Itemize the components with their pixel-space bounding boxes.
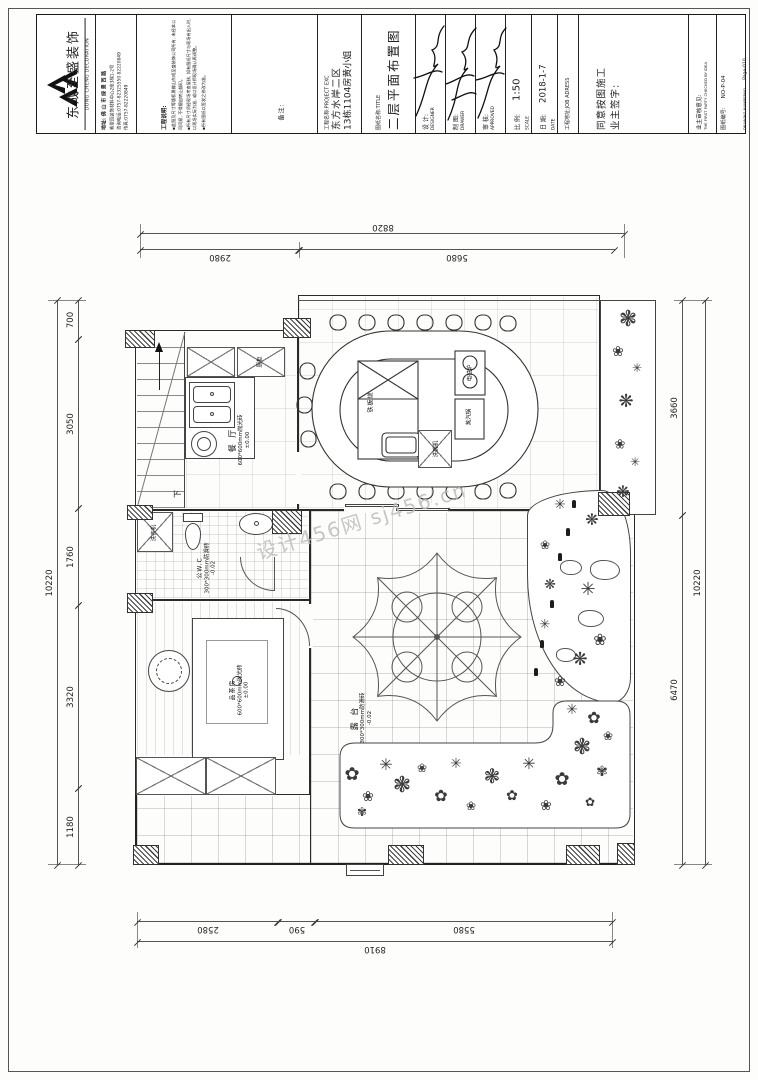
dining-table-set bbox=[300, 315, 545, 500]
drawing-sheet: 东成至盛装饰 DONG CHENG DECORATION 地址: 佛 山 市 绿… bbox=[0, 0, 758, 1080]
flower-icon: ✳ bbox=[522, 756, 535, 772]
drawing-number-cell: 图纸编号: NO-P-04 DRAWING NUMBERNO Page-010 bbox=[717, 15, 745, 133]
dim-top-seg: 5680 bbox=[299, 249, 615, 250]
flower-icon: ❀ bbox=[554, 675, 566, 689]
company-tel: 咨询电话:0757-82325550 82220849 bbox=[116, 18, 123, 130]
toilet-tank bbox=[183, 513, 203, 522]
dim-bottom-overall: 8910 bbox=[137, 941, 613, 942]
title-block: 东成至盛装饰 DONG CHENG DECORATION 地址: 佛 山 市 绿… bbox=[36, 14, 746, 134]
flower-icon: ❀ bbox=[615, 439, 626, 452]
flower-icon: ✿ bbox=[344, 766, 359, 784]
owner-check-label-en: THE FIRST PARTY CHECKED BY IDEA bbox=[704, 18, 709, 130]
notes-heading: 工程说明: bbox=[161, 18, 169, 130]
company-cell: 东成至盛装饰 DONG CHENG DECORATION bbox=[37, 15, 96, 133]
signatures bbox=[414, 20, 514, 128]
approver-signature bbox=[476, 28, 506, 118]
dishwasher-label: 洗碗机 bbox=[434, 441, 441, 458]
dim-right-seg: 6470 bbox=[682, 515, 683, 865]
tea-cabinet-box bbox=[206, 757, 276, 795]
stone bbox=[578, 610, 604, 627]
extension-line bbox=[140, 224, 141, 258]
flower-icon: ❋ bbox=[616, 484, 629, 500]
cabinet-label: 厨柜 bbox=[258, 356, 265, 367]
drawing-title-cell: 图纸名称:TITLE 二层平面布置图 bbox=[362, 15, 416, 133]
exterior-step-line bbox=[350, 870, 380, 871]
flower-icon: ❋ bbox=[572, 651, 587, 669]
wall-column bbox=[127, 593, 153, 613]
company-address-1: 地址: 佛 山 市 绿 景 西 路 bbox=[100, 18, 109, 130]
plant-marker bbox=[540, 640, 544, 648]
drawing-page: Page-010 bbox=[743, 58, 748, 80]
owner-sign-label: 业主签字: bbox=[611, 18, 623, 130]
flower-icon: ✾ bbox=[596, 765, 608, 779]
tea-cabinet-box bbox=[136, 757, 206, 795]
owner-sign-cell: 同意按图施工 业主签字: bbox=[579, 15, 689, 133]
washer-label: 洗衣机 bbox=[152, 525, 159, 542]
plant-marker bbox=[534, 668, 538, 676]
dim-top-overall: 8820 bbox=[140, 233, 625, 234]
wall-column bbox=[617, 843, 635, 865]
wall-column bbox=[133, 845, 159, 865]
flower-icon: ✿ bbox=[585, 796, 595, 808]
drawing-number-value: NO-P-04 bbox=[721, 75, 727, 98]
induction-label: 电磁炉 bbox=[468, 365, 475, 382]
notes-item: ▪所有尺寸须经现场考查复核, 如有图纸尺寸与现场有出入时, 以现场实际为准, 或… bbox=[186, 18, 199, 130]
terrace-floor bbox=[137, 796, 311, 863]
designer-signature bbox=[414, 26, 444, 116]
stairs-arrow-stem bbox=[159, 350, 160, 390]
flower-icon: ❀ bbox=[593, 632, 606, 648]
remark-label: 备注: bbox=[278, 103, 286, 120]
drawing-title: 二层平面布置图 bbox=[385, 18, 401, 130]
teppanyaki-label: 铁板烧 bbox=[367, 391, 375, 412]
flower-icon: ✳ bbox=[554, 498, 566, 512]
wc-label: 公W.C 300*300mm防滑砖 -0.02 bbox=[196, 543, 217, 594]
tree-icon: ❃ bbox=[573, 737, 591, 759]
flower-icon: ✳ bbox=[450, 757, 462, 771]
drawing-number-label: 图纸编号: bbox=[721, 108, 727, 131]
drawing-title-label: 图纸名称:TITLE bbox=[376, 18, 383, 130]
notes-cell: 工程说明: ▪此图及尺寸等版权属佛山东成至盛装饰公司所有, 未经本公司同意, 不… bbox=[137, 15, 233, 133]
date-label: 日 期: bbox=[541, 114, 549, 130]
burner-inner bbox=[197, 437, 211, 451]
flower-icon: ✳ bbox=[580, 581, 595, 599]
dim-top-seg: 2980 bbox=[140, 249, 299, 250]
tree-icon: ❃ bbox=[619, 309, 637, 331]
wall-column bbox=[388, 845, 424, 865]
dim-left-seg: 1760 bbox=[78, 508, 79, 605]
parasol-set bbox=[352, 549, 522, 725]
company-address-2: 紫翠园装饰材料中心2座3梯1-2号 bbox=[109, 18, 116, 130]
stairs-diagonal bbox=[137, 332, 185, 508]
company-fax: 传真:0757-82220849 bbox=[124, 18, 131, 130]
plant-marker bbox=[550, 600, 554, 608]
job-address-label: 工程地址:JOB ADRESS bbox=[565, 18, 572, 130]
cabinet-box bbox=[187, 347, 235, 377]
project-line1: 东方水岸二区 bbox=[331, 18, 343, 130]
chair bbox=[330, 315, 346, 330]
job-address-cell: 工程地址:JOB ADRESS bbox=[558, 15, 580, 133]
stairs-arrow-icon bbox=[155, 342, 163, 352]
extension-line bbox=[624, 224, 625, 258]
dim-bottom-seg: 590 bbox=[278, 921, 315, 922]
date-label-en: DATE bbox=[552, 18, 558, 130]
flower-icon: ❀ bbox=[540, 799, 552, 813]
project-cell: 工程名称:PROJECT EXC 东方水岸二区 13栋1104房黄小姐 bbox=[318, 15, 362, 133]
drawer-signature bbox=[446, 28, 476, 120]
bottom-wall bbox=[135, 863, 635, 865]
remark-cell bbox=[232, 15, 318, 133]
project-label: 工程名称:PROJECT EXC bbox=[324, 18, 331, 130]
date-value: 2018-1-7 bbox=[539, 64, 549, 103]
flower-icon: ❀ bbox=[603, 730, 613, 742]
flower-icon: ✿ bbox=[506, 789, 518, 803]
company-name: 东成至盛装饰 bbox=[66, 18, 85, 130]
flower-icon: ❋ bbox=[585, 512, 598, 528]
flower-icon: ✳ bbox=[632, 362, 642, 374]
owner-agree-text: 同意按图施工 bbox=[597, 18, 609, 130]
round-chair-inner bbox=[156, 658, 182, 684]
plant-marker bbox=[558, 553, 562, 561]
flower-icon: ❀ bbox=[612, 345, 624, 359]
tea-room-label: 品茶房 600*600mm抛光砖 ±0.00 bbox=[229, 665, 250, 716]
dim-left-overall: 10220 bbox=[57, 300, 58, 865]
flower-icon: ❀ bbox=[362, 790, 374, 804]
wc-basin-drain bbox=[254, 521, 259, 526]
stairs-down-label: 下 bbox=[173, 488, 183, 498]
plant-marker bbox=[572, 500, 576, 508]
wall-column bbox=[566, 845, 600, 865]
drawing-number-label-en: DRAWING NUMBERNO bbox=[742, 88, 747, 130]
wall-column bbox=[283, 318, 311, 338]
flower-icon: ❀ bbox=[540, 539, 550, 551]
scale-label: 比 例: bbox=[515, 114, 523, 130]
flower-icon: ❀ bbox=[466, 800, 476, 812]
flower-icon: ✿ bbox=[434, 788, 447, 804]
flower-icon: ❋ bbox=[544, 578, 556, 592]
flower-icon: ✳ bbox=[630, 456, 640, 468]
basin-drain bbox=[210, 392, 214, 396]
dim-right-overall: 10220 bbox=[705, 300, 706, 865]
flower-icon: ❀ bbox=[417, 762, 427, 774]
dining-room-label: 餐 厅 600*600mm抛光砖 ±0.00 bbox=[228, 415, 252, 466]
dim-bottom-seg: 2580 bbox=[137, 921, 278, 922]
notes-item: ▪所有图纸以签发之修改为准。 bbox=[201, 18, 207, 130]
flower-icon: ✿ bbox=[587, 710, 600, 726]
flower-icon: ✳ bbox=[566, 703, 578, 717]
project-line2: 13栋1104房黄小姐 bbox=[343, 18, 355, 130]
tree-icon: ❃ bbox=[393, 775, 411, 797]
flower-icon: ✳ bbox=[540, 619, 551, 632]
window-line bbox=[298, 300, 600, 301]
extension-line bbox=[48, 300, 86, 301]
terrace-label: 露 台 300*300mm防滑砖 -0.02 bbox=[350, 693, 374, 744]
dim-left-seg: 700 bbox=[78, 300, 79, 339]
flower-icon: ✾ bbox=[357, 806, 367, 818]
flower-icon: ✿ bbox=[554, 771, 569, 789]
plant-marker bbox=[566, 528, 570, 536]
company-address-cell: 地址: 佛 山 市 绿 景 西 路 紫翠园装饰材料中心2座3梯1-2号 咨询电话… bbox=[96, 15, 137, 133]
dim-bottom-seg: 5580 bbox=[315, 921, 613, 922]
company-name-en: DONG CHENG DECORATION bbox=[85, 18, 91, 130]
wall-column bbox=[125, 330, 155, 348]
flower-icon: ✳ bbox=[379, 757, 392, 773]
dim-left-seg: 3320 bbox=[78, 605, 79, 788]
stone bbox=[560, 560, 582, 575]
wall-column bbox=[127, 505, 153, 520]
steamer-label: 蒸汽锅 bbox=[467, 409, 474, 426]
flower-icon: ❋ bbox=[618, 393, 633, 411]
stone bbox=[590, 560, 620, 580]
notes-item: ▪此图及尺寸等版权属佛山东成至盛装饰公司所有, 未经本公司同意, 不得擅自转让翻… bbox=[172, 18, 185, 130]
wc-door-leaf bbox=[274, 557, 275, 591]
basin-drain bbox=[210, 412, 214, 416]
date-cell: 日 期: 2018-1-7 DATE bbox=[532, 15, 558, 133]
tree-icon: ❃ bbox=[484, 766, 501, 786]
dim-left-seg: 1180 bbox=[78, 788, 79, 865]
dim-right-seg: 3660 bbox=[682, 300, 683, 515]
dim-left-seg: 3050 bbox=[78, 339, 79, 508]
